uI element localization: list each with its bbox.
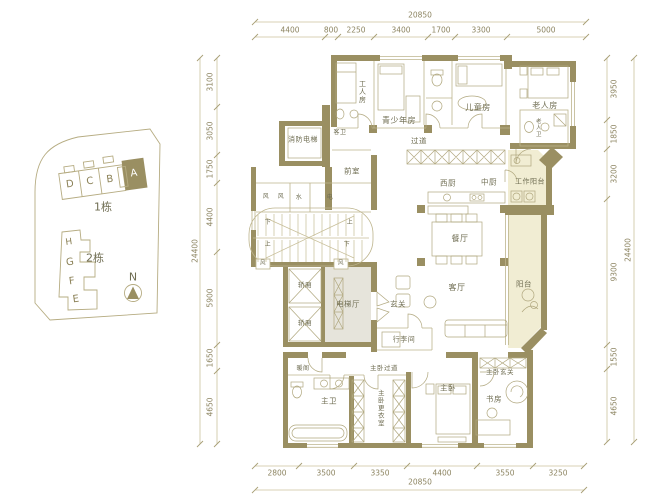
stair-label-down-2: 下 xyxy=(344,242,351,248)
dim-top-total: 20850 xyxy=(408,11,432,19)
dim-right-seg: 1850 xyxy=(610,124,618,143)
dim-bottom-seg: 3350 xyxy=(370,469,389,477)
room-label-foyer: 玄关 xyxy=(390,300,406,308)
dim-top-seg: 800 xyxy=(324,26,338,34)
room-label-corridor: 过道 xyxy=(411,137,427,145)
keyplan-unit-e: E xyxy=(72,295,80,306)
dim-left-seg: 1750 xyxy=(206,159,214,178)
dim-top-seg: 5000 xyxy=(536,26,555,34)
dim-top-seg: 3300 xyxy=(471,26,490,34)
keyplan-unit-h: H xyxy=(65,238,73,248)
shaft-label-water: 水 xyxy=(296,195,303,201)
dim-left-seg: 5900 xyxy=(206,288,214,307)
room-label-guest-bath: 客卫 xyxy=(333,130,346,136)
dim-bottom-seg: 3250 xyxy=(548,469,567,477)
room-label-work-balcony: 工作阳台 xyxy=(515,179,545,186)
north-arrow-label: N xyxy=(129,272,137,283)
room-label-master-bath: 主卫 xyxy=(321,397,337,405)
room-label-nook: 暖阁 xyxy=(296,366,309,372)
dim-bottom-seg: 3500 xyxy=(316,469,335,477)
room-label-master-closet: 主卧更衣室 xyxy=(377,389,384,427)
room-label-balcony: 阳台 xyxy=(516,280,532,288)
dim-right-seg: 3950 xyxy=(610,79,618,98)
dim-left-seg: 4650 xyxy=(206,397,214,416)
keyplan-unit-c: C xyxy=(86,177,94,188)
stair-label-up-2: 上 xyxy=(265,242,272,248)
dim-left-seg: 4400 xyxy=(206,207,214,226)
room-label-elder-bath: 老人卫 xyxy=(534,118,540,138)
stair-label-up-1: 上 xyxy=(347,220,354,226)
room-label-elevator-hall: 电梯厅 xyxy=(336,300,360,308)
dim-top-seg: 1700 xyxy=(431,26,450,34)
keyplan-unit-b: B xyxy=(106,175,114,186)
room-label-west-kitchen: 西厨 xyxy=(440,179,456,187)
room-label-kids-room: 儿童房 xyxy=(465,104,491,112)
dim-right-seg: 9300 xyxy=(610,262,618,281)
room-label-elevator-car-1: 轿厢 xyxy=(298,282,312,289)
shaft-label-wind-3: 风 xyxy=(260,261,266,267)
stair-label-down-1: 下 xyxy=(265,220,272,226)
room-label-elevator-car-2: 轿厢 xyxy=(298,320,312,327)
room-label-master-bedroom: 主卧 xyxy=(440,384,456,392)
dim-bottom-seg: 3550 xyxy=(495,469,514,477)
dim-left-seg: 3050 xyxy=(206,121,214,140)
room-label-anteroom: 前室 xyxy=(344,167,360,175)
dim-right-seg: 1550 xyxy=(610,347,618,366)
dim-top-seg: 3400 xyxy=(391,26,410,34)
keyplan-building2-label: 2栋 xyxy=(86,253,104,264)
room-label-living: 客厅 xyxy=(449,284,466,292)
dim-right-seg: 3200 xyxy=(610,164,618,183)
shaft-label-wind-1: 风 xyxy=(263,194,270,200)
room-label-dining: 餐厅 xyxy=(452,235,469,243)
dim-left-seg: 1650 xyxy=(206,348,214,367)
room-label-teen-room: 青少年房 xyxy=(382,117,416,125)
shaft-label-electric: 电 xyxy=(327,195,334,201)
keyplan-unit-d: D xyxy=(65,180,74,191)
dimension-lines xyxy=(200,22,634,490)
room-label-fire-elevator: 消防电梯 xyxy=(288,137,318,144)
doors xyxy=(308,114,531,389)
dim-bottom-total: 20850 xyxy=(408,478,432,486)
dim-left-seg: 3100 xyxy=(206,72,214,91)
floorplan-page: 20850 4400 800 2250 3400 1700 3300 5000 … xyxy=(0,0,670,502)
room-label-luggage: 行李间 xyxy=(393,337,416,344)
keyplan-building1-label: 1栋 xyxy=(94,202,112,213)
room-label-master-foyer: 主卧玄关 xyxy=(486,369,514,376)
dim-right-total: 24400 xyxy=(624,238,632,262)
dim-top-seg: 2250 xyxy=(346,26,365,34)
dim-right-seg: 4650 xyxy=(610,396,618,415)
shaft-label-wind-2: 风 xyxy=(278,194,285,200)
shaft-label-wind-4: 风 xyxy=(338,261,344,267)
dim-top-seg: 4400 xyxy=(280,26,299,34)
dim-bottom-seg: 4400 xyxy=(432,469,451,477)
room-label-worker-room: 工人房 xyxy=(359,80,366,104)
dim-left-total: 24400 xyxy=(191,239,199,263)
room-label-elder-room: 老人房 xyxy=(532,102,558,110)
room-label-study: 书房 xyxy=(486,395,502,403)
dim-bottom-seg: 2800 xyxy=(267,469,286,477)
keyplan-unit-a-highlighted: A xyxy=(130,169,138,180)
room-label-master-corridor: 主卧过道 xyxy=(370,365,398,372)
keyplan-unit-f: F xyxy=(68,277,75,288)
keyplan-drawing xyxy=(35,129,160,320)
keyplan-unit-g: G xyxy=(65,258,74,269)
room-label-mid-kitchen: 中厨 xyxy=(481,178,497,186)
